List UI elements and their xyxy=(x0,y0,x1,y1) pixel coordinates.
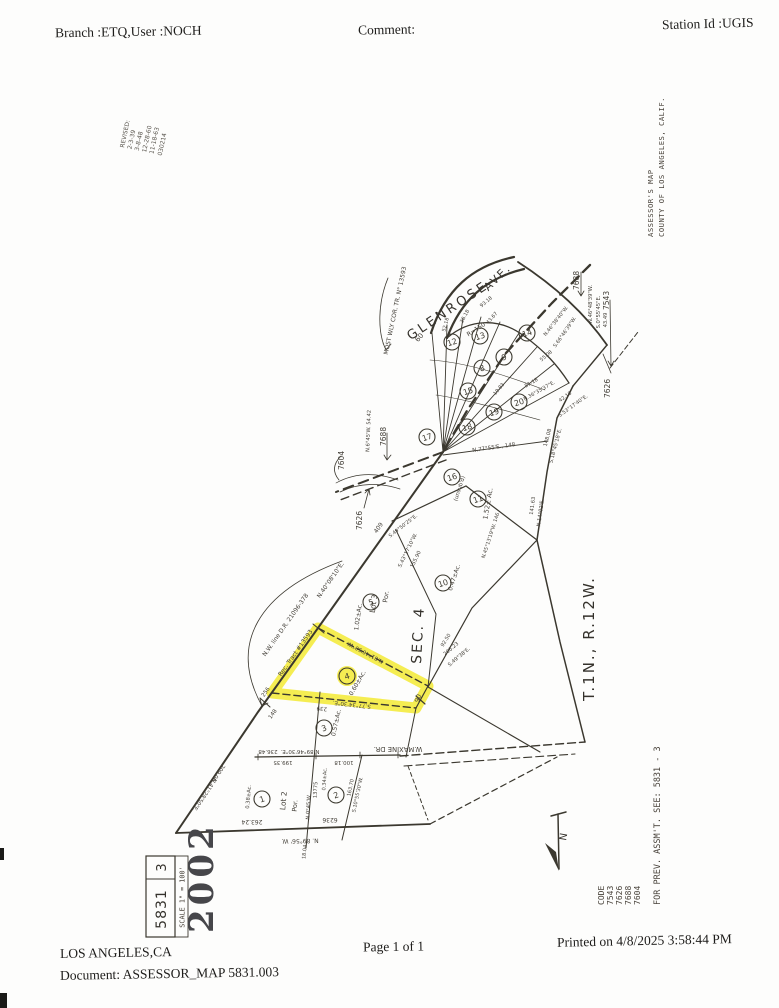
map-annotation: N.6°45'W. 54.42 xyxy=(365,410,372,452)
assessor-map-label: ASSESSOR'S MAP xyxy=(646,169,655,237)
map-book-number: 5831 xyxy=(154,889,170,929)
map-annotation: N. 89°56' W. xyxy=(281,837,318,845)
parcel-number-3: 3 xyxy=(320,723,328,733)
map-annotation: Por. xyxy=(291,800,300,812)
map-annotation: 409 xyxy=(373,521,385,535)
parcel-number-8: 8 xyxy=(478,363,486,373)
map-line xyxy=(306,692,320,848)
code-item: 7604 xyxy=(633,886,642,905)
map-line xyxy=(573,345,607,386)
map-annotation: 0.38±Ac. xyxy=(245,784,253,809)
map-annotation: 263.24 xyxy=(241,818,262,825)
scan-artifact xyxy=(0,993,7,1008)
north-label: N xyxy=(558,832,570,841)
north-arrow xyxy=(545,812,566,871)
map-annotation: 18.04 xyxy=(301,845,308,860)
map-annotations: MOST WLY COR. TR. N° 1359360R=15093.1852… xyxy=(190,266,609,860)
map-annotation: 1.52± Ac. xyxy=(481,487,494,520)
road-dashed xyxy=(340,460,446,500)
code-callout-7688: 7688 xyxy=(379,427,388,446)
map-line xyxy=(428,687,540,752)
map-annotation: 148 xyxy=(268,708,279,720)
year-stamp: 2002 xyxy=(182,822,222,933)
map-annotation: 236.48 xyxy=(258,748,278,754)
map-annotation: 209.06 xyxy=(210,763,226,783)
leader-line xyxy=(364,489,370,508)
map-line xyxy=(430,757,557,824)
map-annotation: Rec. Tract #13593 xyxy=(277,628,315,677)
map-annotation: N.77°55'E., 148 xyxy=(472,442,516,454)
map-annotation: N.14°02'E. xyxy=(536,498,546,527)
parcel-number-2: 2 xyxy=(332,790,340,800)
map-annotation: N.41°28'50"E. xyxy=(190,777,217,813)
code-item: 7688 xyxy=(624,886,633,905)
printed-assessor-map-page: { "header": { "branch": "Branch :ETQ,Use… xyxy=(0,0,779,1008)
map-annotation: 43.49 xyxy=(603,313,609,328)
code-callout-7626: 7626 xyxy=(603,379,612,398)
parcel-number-12: 12 xyxy=(446,337,458,349)
parcel-number-11: 11 xyxy=(472,494,484,506)
map-page-number: 3 xyxy=(155,863,170,871)
code-list-title: CODE xyxy=(597,886,606,905)
map-annotation: 51.18 xyxy=(524,377,539,389)
map-annotation: 155.90 xyxy=(409,550,422,569)
assessor-map: MOST WLY COR. TR. N° 1359360R=15093.1852… xyxy=(0,0,779,1008)
map-annotation: 19.83 xyxy=(492,382,506,397)
code-callout-7604: 7604 xyxy=(337,451,346,470)
map-annotation: 0.57±Ac. xyxy=(330,708,343,737)
map-annotation: 0.34±Ac. xyxy=(321,767,328,791)
map-line xyxy=(610,332,638,368)
map-annotation: 141.63 xyxy=(529,496,537,515)
map-annotation: 13775 xyxy=(313,782,320,799)
map-line xyxy=(428,540,537,687)
revised-dates-block: REVISED: 2-3-39 3-8-48 12-28-60 11-18-63… xyxy=(119,119,169,156)
parcel-number-15: 15 xyxy=(462,386,474,398)
map-annotation: MOST WLY COR. TR. N° 13593 xyxy=(383,266,409,356)
section-label: SEC. 4 xyxy=(409,606,428,664)
parcel-number-18: 18 xyxy=(461,422,473,434)
scan-artifact xyxy=(0,848,4,860)
parcel-number-17: 17 xyxy=(421,432,433,444)
code-callout-7543: 7543 xyxy=(602,291,611,310)
map-annotation: 100.18 xyxy=(334,759,354,765)
code-callout-7626: 7626 xyxy=(355,511,364,530)
parcel-number-14: 14 xyxy=(521,328,533,340)
map-annotation: 239 xyxy=(316,704,328,711)
code-item: 7626 xyxy=(615,886,624,905)
footer-page-indicator: Page 1 of 1 xyxy=(363,938,424,955)
parcel-number-16: 16 xyxy=(446,472,458,484)
parcel-number-1: 1 xyxy=(258,794,266,804)
map-annotation: N.46°48'39"W. xyxy=(588,285,594,323)
map-annotation: 6236 xyxy=(322,816,337,823)
map-annotation: Por. xyxy=(381,590,391,603)
map-line xyxy=(408,766,428,820)
street-maxine-label: W.MAXINE DR. xyxy=(374,745,423,753)
map-annotation: N.0°45'W. xyxy=(305,794,312,820)
township-range-label: T.1N., R.12W. xyxy=(580,576,598,702)
street-maxine xyxy=(404,754,575,766)
footer-city: LOS ANGELES,CA xyxy=(60,944,172,962)
map-annotation: N.89°46'30"E. xyxy=(280,748,319,754)
map-annotation: Lot 2 xyxy=(278,791,289,811)
map-annotation: 1.02±Ac. xyxy=(353,603,364,631)
county-label: COUNTY OF LOS ANGELES, CALIF. xyxy=(657,97,666,237)
code-item: 7543 xyxy=(606,886,615,905)
parcel-number-13: 13 xyxy=(474,331,486,343)
parcel-numbers: 12345101116171815192098141312 xyxy=(254,325,535,807)
prev-assessment-note: FOR PREV. ASSM'T. SEE: 5831 - 3 xyxy=(653,746,663,905)
code-callout-7688: 7688 xyxy=(572,271,581,290)
street-maxine xyxy=(400,742,585,756)
map-annotation: 199.35 xyxy=(273,759,293,765)
map-line xyxy=(255,755,400,757)
